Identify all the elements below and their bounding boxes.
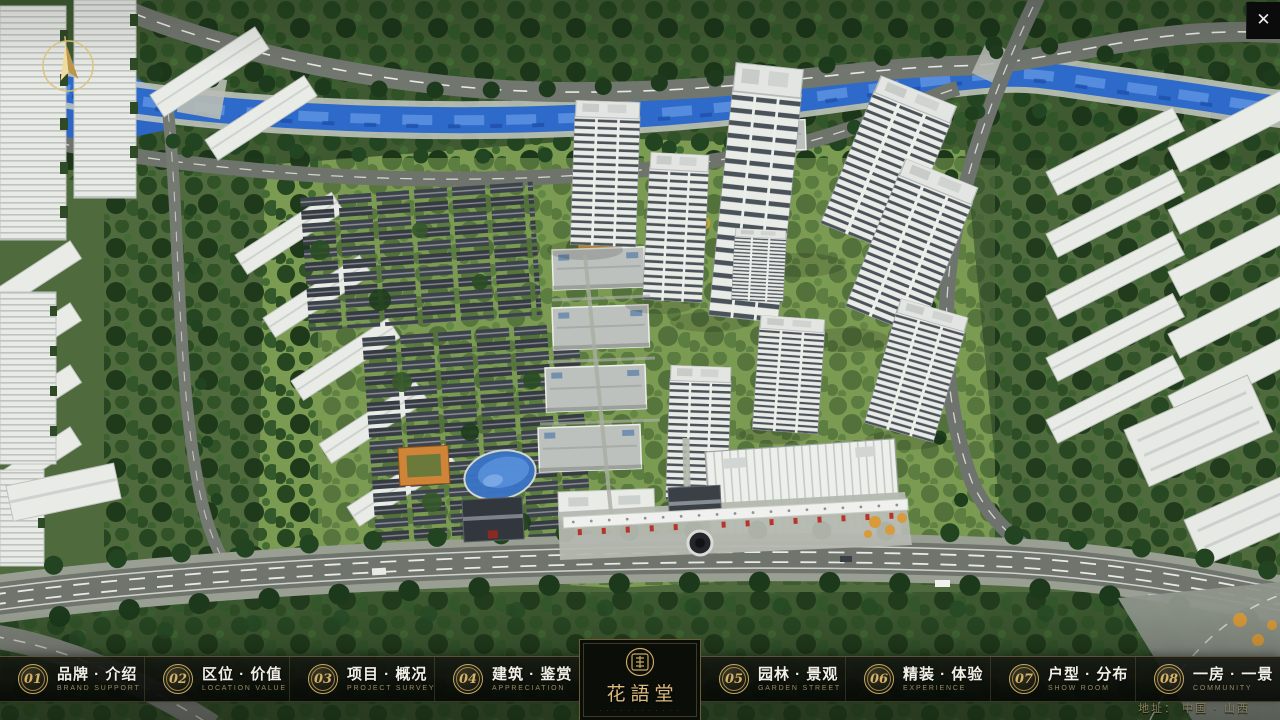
nav-item-label-zh: 户型 · 分布 bbox=[1048, 666, 1128, 683]
nav-item-label-en: EXPERIENCE bbox=[903, 684, 983, 693]
nav-item-label-zh: 一房 · 一景 bbox=[1193, 666, 1273, 683]
item-number-badge: 08 bbox=[1154, 664, 1184, 694]
nav-item-floorplan-distribution[interactable]: 07 户型 · 分布SHOW ROOM bbox=[990, 657, 1135, 701]
item-number-badge: 02 bbox=[163, 664, 193, 694]
nav-item-label-zh: 建筑 · 鉴赏 bbox=[492, 666, 572, 683]
nav-item-label-en: GARDEN STREET bbox=[758, 684, 841, 693]
nav-item-brand-intro[interactable]: 01 品牌 · 介绍BRAND SUPPORT bbox=[0, 657, 144, 701]
item-number-badge: 01 bbox=[18, 664, 48, 694]
nav-group-left: 01 品牌 · 介绍BRAND SUPPORT 02 区位 · 价值LOCATI… bbox=[0, 657, 579, 701]
nav-item-label-en: LOCATION VALUE bbox=[202, 684, 287, 693]
nav-item-project-overview[interactable]: 03 项目 · 概况PROJECT SURVEY bbox=[289, 657, 434, 701]
project-address: 地址： 中国 · 山西 bbox=[1138, 700, 1250, 716]
nav-item-garden-landscape[interactable]: 05 园林 · 景观GARDEN STREET bbox=[701, 657, 845, 701]
nav-item-label-zh: 园林 · 景观 bbox=[758, 666, 841, 683]
bottom-nav: 01 品牌 · 介绍BRAND SUPPORT 02 区位 · 价值LOCATI… bbox=[0, 656, 1280, 702]
seal-icon bbox=[625, 647, 655, 677]
compass-icon bbox=[38, 32, 100, 98]
nav-item-label-zh: 品牌 · 介绍 bbox=[57, 666, 141, 683]
logo-panel[interactable]: 花語堂 · · · · · · · · · · · · bbox=[579, 639, 701, 720]
nav-item-label-en: COMMUNITY bbox=[1193, 684, 1273, 693]
nav-item-label-zh: 项目 · 概况 bbox=[347, 666, 434, 683]
item-number-badge: 06 bbox=[864, 664, 894, 694]
nav-item-label-zh: 精装 · 体验 bbox=[903, 666, 983, 683]
nav-item-label-en: APPRECIATION bbox=[492, 684, 572, 693]
logo-subtitle: · · · · · · · · · · · · bbox=[599, 708, 680, 714]
close-button[interactable]: ✕ bbox=[1246, 2, 1280, 39]
item-number-badge: 03 bbox=[308, 664, 338, 694]
nav-item-architecture[interactable]: 04 建筑 · 鉴赏APPRECIATION bbox=[434, 657, 579, 701]
item-number-badge: 04 bbox=[453, 664, 483, 694]
item-number-badge: 07 bbox=[1009, 664, 1039, 694]
nav-item-label-en: SHOW ROOM bbox=[1048, 684, 1128, 693]
logo-title: 花語堂 bbox=[601, 679, 678, 706]
nav-item-label-en: BRAND SUPPORT bbox=[57, 684, 141, 693]
nav-item-label-zh: 区位 · 价值 bbox=[202, 666, 287, 683]
nav-item-interior-experience[interactable]: 06 精装 · 体验EXPERIENCE bbox=[845, 657, 990, 701]
item-number-badge: 05 bbox=[719, 664, 749, 694]
app-window: ✕ 01 品牌 · 介绍BRAND SUPPORT 02 区位 · 价值LOCA… bbox=[0, 0, 1280, 720]
masterplan-3d-view[interactable] bbox=[0, 0, 1280, 720]
nav-group-right: 05 园林 · 景观GARDEN STREET 06 精装 · 体验EXPERI… bbox=[701, 657, 1280, 701]
nav-item-label-en: PROJECT SURVEY bbox=[347, 684, 434, 693]
nav-item-room-view[interactable]: 08 一房 · 一景COMMUNITY bbox=[1135, 657, 1280, 701]
nav-item-location-value[interactable]: 02 区位 · 价值LOCATION VALUE bbox=[144, 657, 289, 701]
